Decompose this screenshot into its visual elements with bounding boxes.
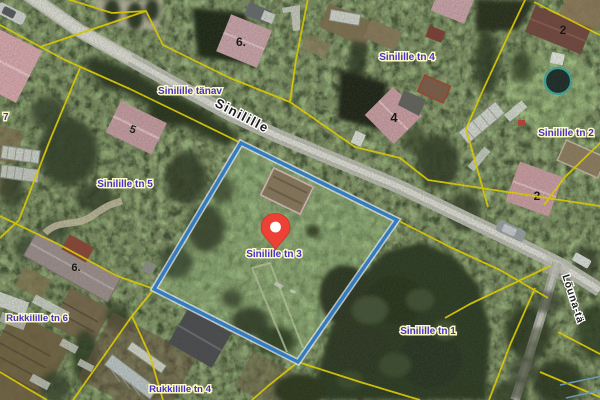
- svg-text:Sinilille tn 1: Sinilille tn 1: [400, 326, 456, 337]
- svg-text:Sinilille tn 3: Sinilille tn 3: [246, 249, 302, 260]
- svg-text:Sinilille tn 5: Sinilille tn 5: [97, 179, 153, 190]
- svg-text:Rukkilille tn 4: Rukkilille tn 4: [149, 384, 212, 395]
- svg-text:Sinilille tn 4: Sinilille tn 4: [379, 52, 435, 63]
- svg-text:Rukkilille tn 6: Rukkilille tn 6: [6, 313, 68, 324]
- svg-text:7: 7: [3, 112, 9, 123]
- svg-text:Sinilille tänav: Sinilille tänav: [158, 86, 222, 97]
- svg-text:Sinilille tn 2: Sinilille tn 2: [538, 128, 594, 139]
